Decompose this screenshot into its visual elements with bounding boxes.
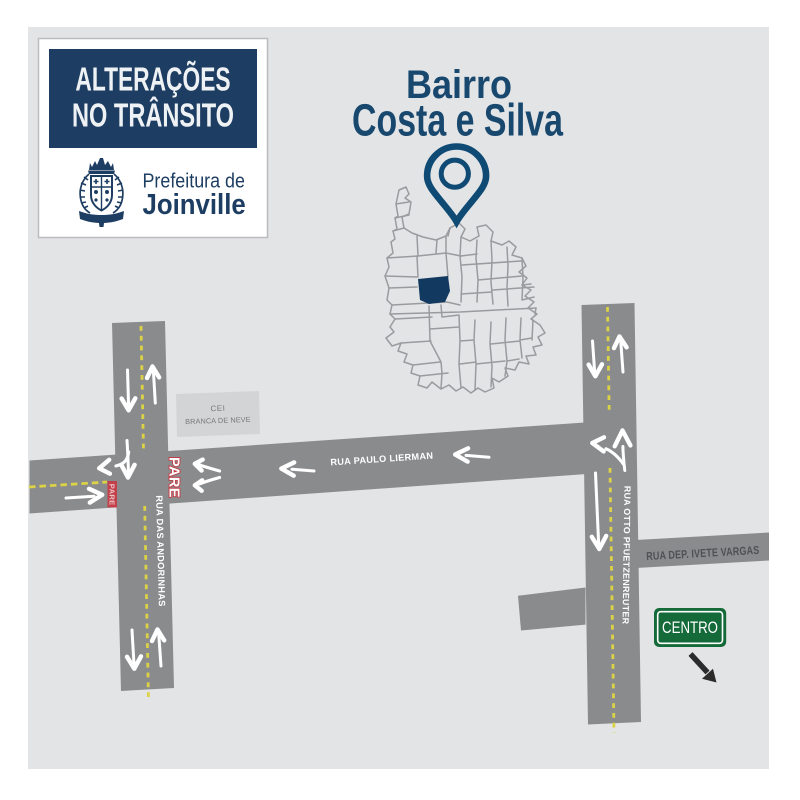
svg-text:CENTRO: CENTRO [662, 619, 718, 638]
svg-text:Joinville: Joinville [143, 188, 246, 221]
svg-text:PARE: PARE [107, 484, 116, 506]
svg-text:ALTERAÇÕES: ALTERAÇÕES [75, 61, 230, 98]
svg-text:CEI: CEI [210, 404, 225, 414]
svg-text:Costa e Silva: Costa e Silva [352, 96, 564, 146]
svg-text:NO TRÂNSITO: NO TRÂNSITO [72, 95, 234, 134]
svg-text:PARE: PARE [166, 457, 182, 498]
svg-text:RUA OTTO PFUETZENREUTER: RUA OTTO PFUETZENREUTER [621, 486, 633, 625]
